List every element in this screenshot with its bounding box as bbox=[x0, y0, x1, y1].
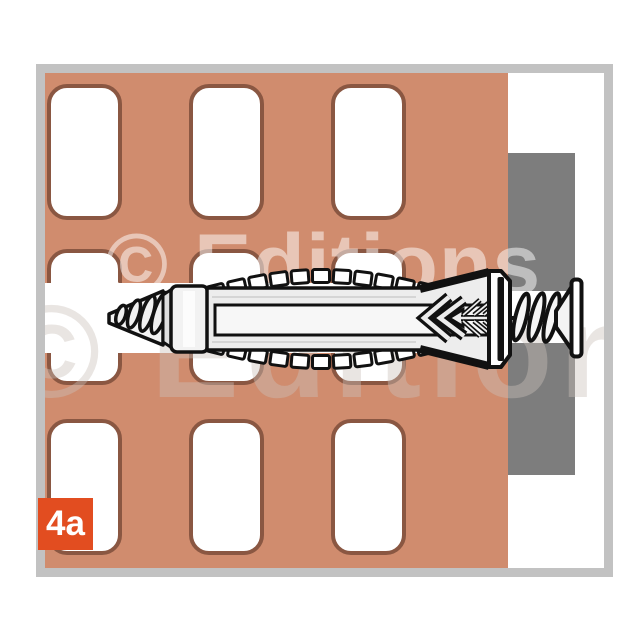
illustration-canvas: © Editions © Editions bbox=[0, 0, 640, 640]
step-label: 4a bbox=[38, 498, 93, 550]
diagram-frame bbox=[36, 64, 613, 577]
